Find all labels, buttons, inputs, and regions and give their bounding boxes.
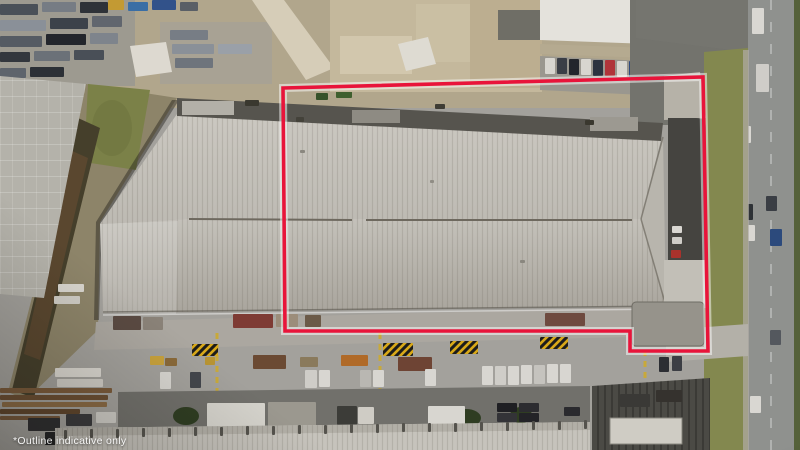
car <box>770 229 782 246</box>
car <box>770 330 781 345</box>
roof-rib-tick <box>220 427 223 436</box>
roof-rib-tick <box>142 428 145 437</box>
roof-rib-tick <box>506 422 509 431</box>
car <box>750 396 761 413</box>
parked-vehicle <box>160 372 171 389</box>
small-white-building <box>130 42 172 77</box>
roof-detail <box>671 250 681 258</box>
scrap-vehicle <box>172 44 214 54</box>
roof-rib-tick <box>168 428 171 437</box>
north-strip-block-3 <box>590 117 638 131</box>
hazard-marking <box>383 343 413 356</box>
container <box>253 355 286 369</box>
roof-detail <box>430 180 434 183</box>
dock-truck <box>233 314 273 328</box>
rooftop-equipment <box>498 10 540 40</box>
white-roof-bottom-right <box>610 418 682 444</box>
parked-car <box>545 58 555 74</box>
canopy-roof <box>57 379 103 387</box>
scrap-vehicle <box>0 36 42 47</box>
dock-truck <box>545 313 585 326</box>
parked-vehicle <box>319 370 330 387</box>
roof-detail <box>520 260 525 263</box>
material-stack <box>0 409 80 414</box>
rooftop-unit <box>268 402 316 427</box>
right-edge-green <box>794 0 800 450</box>
sidewalk <box>743 50 749 450</box>
container <box>398 357 432 371</box>
material-stack <box>2 402 107 407</box>
roof-rib-tick <box>298 425 301 434</box>
scrap-vehicle <box>170 30 208 40</box>
roof-ribs-lower <box>100 219 666 313</box>
parked-vehicle <box>305 370 317 388</box>
car <box>756 64 769 92</box>
roof-rib-tick <box>454 423 457 432</box>
roof-detail <box>585 120 594 125</box>
roof-rib-tick <box>480 422 483 431</box>
parked-vehicle <box>425 369 436 386</box>
step-building-roof <box>632 302 704 346</box>
aerial-photo: *Outline indicative only <box>0 0 800 450</box>
container <box>165 358 177 366</box>
hazard-marking <box>192 344 218 356</box>
roof-extension-panel <box>100 221 178 314</box>
yard-object <box>108 0 124 10</box>
scrap-vehicle <box>74 50 104 60</box>
roof-detail <box>620 394 650 407</box>
hazard-marking <box>450 341 478 354</box>
parked-car <box>605 60 615 76</box>
car <box>752 8 764 34</box>
parked-car <box>617 61 627 77</box>
hazard-marking <box>540 337 568 349</box>
grass-verge <box>704 48 748 450</box>
north-strip-block-2 <box>352 110 400 123</box>
scrap-vehicle <box>50 18 88 29</box>
material-stack <box>0 388 112 393</box>
yard-object <box>180 2 198 11</box>
container <box>341 355 368 366</box>
roof-detail <box>656 390 682 402</box>
material-stack <box>0 395 108 400</box>
parked-vehicle <box>508 366 519 385</box>
parked-vehicle <box>560 364 571 383</box>
roof-rib-tick <box>350 424 353 433</box>
parked-car <box>593 60 603 76</box>
dock-truck <box>143 317 163 330</box>
hedge <box>173 407 199 425</box>
scrap-vehicle <box>42 2 76 12</box>
roof-detail <box>672 237 682 244</box>
scrap-vehicle <box>218 44 252 54</box>
ridge-vent-west <box>189 219 352 220</box>
parked-vehicle <box>190 372 201 388</box>
roof-rib-tick <box>558 421 561 430</box>
yard-object <box>152 0 176 10</box>
parked-car <box>569 59 579 75</box>
aerial-scene <box>0 0 800 450</box>
rooftop-unit <box>358 407 374 424</box>
parked-car <box>581 59 591 75</box>
roof-rib-tick <box>324 425 327 434</box>
rooftop-unit <box>564 407 580 416</box>
canopy-roof <box>55 368 101 377</box>
parked-vehicle <box>534 365 545 384</box>
parked-vehicle <box>495 366 506 385</box>
rooftop-unit <box>497 403 517 412</box>
rooftop-unit <box>497 413 517 422</box>
east-concrete <box>664 260 708 308</box>
scrap-vehicle <box>30 67 64 77</box>
roof-detail <box>672 226 682 233</box>
parked-vehicle <box>659 357 669 372</box>
parked-vehicle <box>66 414 92 426</box>
dock-truck <box>305 315 321 327</box>
canopy-roof <box>54 296 80 304</box>
scrap-vehicle <box>175 58 213 68</box>
scrap-vehicle <box>80 2 108 13</box>
scrap-vehicle <box>46 34 86 45</box>
parked-vehicle <box>482 366 493 385</box>
dock-truck <box>113 316 141 330</box>
parked-vehicle <box>373 370 384 387</box>
roof-rib-tick <box>532 421 535 430</box>
scrap-vehicle <box>0 52 30 62</box>
scrap-vehicle <box>90 33 118 44</box>
roof-detail <box>300 150 305 153</box>
disclaimer-text: *Outline indicative only <box>13 435 126 447</box>
rooftop-unit <box>207 403 265 427</box>
rooftop-unit <box>519 403 539 412</box>
scrap-vehicle <box>34 51 70 61</box>
roof-rib-tick <box>272 426 275 435</box>
parked-vehicle <box>547 364 558 383</box>
scrap-vehicle <box>0 20 46 31</box>
roof-rib-tick <box>584 420 587 429</box>
parked-vehicle <box>672 356 682 371</box>
roof-rib-tick <box>376 424 379 433</box>
yard-object <box>128 2 148 11</box>
north-strip-light-block <box>182 101 234 115</box>
roof-rib-tick <box>246 426 249 435</box>
tan-roof-section <box>340 36 412 74</box>
container <box>205 357 215 365</box>
roof-rib-tick <box>402 423 405 432</box>
rooftop-unit <box>337 406 357 425</box>
parked-car <box>557 58 567 74</box>
roof-rib-tick <box>428 423 431 432</box>
parked-vehicle <box>360 370 371 387</box>
rooftop-unit <box>519 413 539 422</box>
car <box>766 196 777 211</box>
roof-detail <box>435 104 445 109</box>
container <box>300 357 318 367</box>
roof-rib-tick <box>194 427 197 436</box>
canopy-roof <box>58 284 84 292</box>
parked-vehicle <box>96 412 116 423</box>
roof-detail <box>296 117 304 122</box>
scrap-vehicle <box>92 16 122 27</box>
yard-object <box>316 93 328 100</box>
parked-vehicle <box>521 365 532 384</box>
scrap-vehicle <box>0 4 38 15</box>
container <box>150 356 164 365</box>
roof-detail <box>245 100 259 106</box>
